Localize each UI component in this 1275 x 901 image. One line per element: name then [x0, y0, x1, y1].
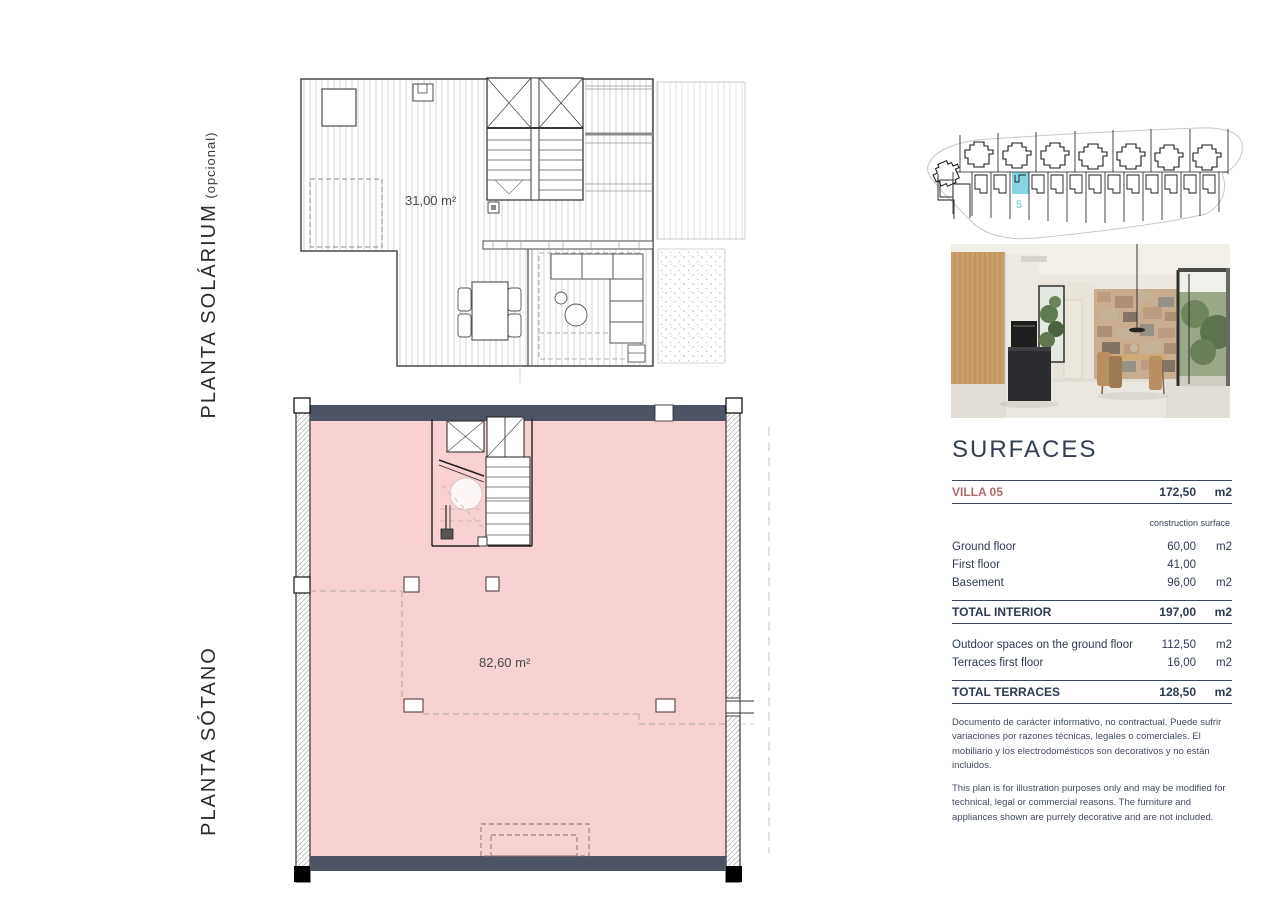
site-plan: 5	[918, 122, 1253, 242]
solarium-floor-title: PLANTA SOLÁRIUM	[198, 203, 220, 418]
dining-set	[458, 282, 521, 340]
row-unit: m2	[1196, 638, 1232, 652]
row-label: Terraces first floor	[952, 656, 1134, 670]
row-value: 41,00	[1134, 558, 1196, 572]
corner-pier	[726, 398, 742, 413]
dining-chair	[1149, 356, 1162, 390]
corner-pier	[294, 866, 310, 882]
glazing-post	[1226, 268, 1230, 386]
total-unit: m2	[1196, 685, 1232, 699]
row-label: First floor	[952, 558, 1134, 572]
gravel-patio	[658, 249, 725, 363]
row-value: 60,00	[1134, 540, 1196, 554]
roof-box	[322, 89, 356, 126]
table-row: Outdoor spaces on the ground floor 112,5…	[952, 636, 1232, 654]
solarium-stairwell	[487, 78, 583, 213]
solarium-area-label: 31,00 m²	[405, 193, 457, 208]
right-wall	[726, 404, 740, 882]
total-unit: m2	[1196, 605, 1232, 619]
solarium-floor-plan: 31,00 m²	[295, 74, 750, 386]
planter	[628, 345, 645, 362]
table-row: Basement 96,00 m2	[952, 574, 1232, 592]
row-label: Basement	[952, 576, 1134, 590]
plot-number-label: 5	[1016, 199, 1022, 211]
total-label: TOTAL TERRACES	[952, 685, 1134, 699]
surfaces-title: SURFACES	[952, 436, 1232, 464]
total-value: 128,50	[1134, 685, 1196, 699]
row-unit: m2	[1196, 540, 1232, 554]
row-label: Ground floor	[952, 540, 1134, 554]
disclaimer-spanish: Documento de carácter informativo, no co…	[952, 716, 1232, 773]
row-value: 96,00	[1134, 576, 1196, 590]
coffee-table	[565, 304, 587, 326]
basement-area-label: 82,60 m²	[479, 655, 531, 670]
solarium-floor-label: PLANTA SOLÁRIUM (opcional)	[198, 105, 221, 445]
terrace-wall-band	[483, 241, 653, 249]
interior-rows: Ground floor 60,00 m2 First floor 41,00 …	[952, 538, 1232, 592]
dining-chair	[1097, 352, 1111, 386]
chimney	[413, 84, 433, 101]
kitchen-island	[999, 339, 1059, 408]
table-row: Ground floor 60,00 m2	[952, 538, 1232, 556]
side-table	[555, 292, 567, 304]
garden-view	[1178, 268, 1230, 386]
unit-footprints	[975, 175, 1215, 193]
surfaces-panel: SURFACES VILLA 05 172,50 m2 construction…	[952, 436, 1232, 834]
dining-chair	[1109, 356, 1122, 388]
right-wall-opening	[726, 698, 754, 716]
bottom-plot-dividers	[953, 172, 1219, 223]
villa-name: VILLA 05	[952, 485, 1134, 499]
table-vase	[1130, 344, 1138, 352]
pergola-dashed-area	[310, 179, 382, 247]
basement-floor-label: PLANTA SÓTANO	[198, 627, 221, 855]
solarium-floor-suffix: (opcional)	[203, 132, 218, 204]
wall-opening	[655, 405, 673, 421]
bottom-structural-wall	[310, 856, 726, 871]
total-terraces-row: TOTAL TERRACES 128,50 m2	[952, 680, 1232, 704]
total-label: TOTAL INTERIOR	[952, 605, 1134, 619]
villa-total-unit: m2	[1196, 485, 1232, 499]
adjacent-deck-area	[657, 82, 745, 239]
outdoor-rows: Outdoor spaces on the ground floor 112,5…	[952, 636, 1232, 672]
legal-disclaimer: Documento de carácter informativo, no co…	[952, 716, 1232, 825]
construction-surface-note: construction surface	[952, 518, 1232, 528]
plan-sheet-page: PLANTA SOLÁRIUM (opcional) PLANTA SÓTANO	[0, 0, 1275, 901]
disclaimer-english: This plan is for illustration purposes o…	[952, 782, 1232, 825]
basement-floor-plan: 82,60 m²	[292, 397, 772, 889]
basement-floor-title: PLANTA SÓTANO	[198, 646, 220, 836]
row-unit: m2	[1196, 576, 1232, 590]
row-value: 112,50	[1134, 638, 1196, 652]
interior-render-photo	[951, 244, 1230, 418]
left-wall	[296, 404, 310, 882]
glazing-header	[1178, 268, 1230, 272]
wall-pier	[294, 577, 310, 593]
row-unit: m2	[1196, 656, 1232, 670]
door	[1064, 300, 1082, 379]
villa-total-value: 172,50	[1134, 485, 1196, 499]
corner-pier	[726, 866, 742, 882]
table-row: First floor 41,00	[952, 556, 1232, 574]
row-label: Outdoor spaces on the ground floor	[952, 638, 1134, 652]
row-value: 16,00	[1134, 656, 1196, 670]
corner-pier	[294, 398, 310, 413]
table-row: Terraces first floor 16,00 m2	[952, 654, 1232, 672]
total-value: 197,00	[1134, 605, 1196, 619]
villa-total-row: VILLA 05 172,50 m2	[952, 480, 1232, 504]
ceiling-vent	[1021, 256, 1047, 262]
total-interior-row: TOTAL INTERIOR 197,00 m2	[952, 600, 1232, 624]
